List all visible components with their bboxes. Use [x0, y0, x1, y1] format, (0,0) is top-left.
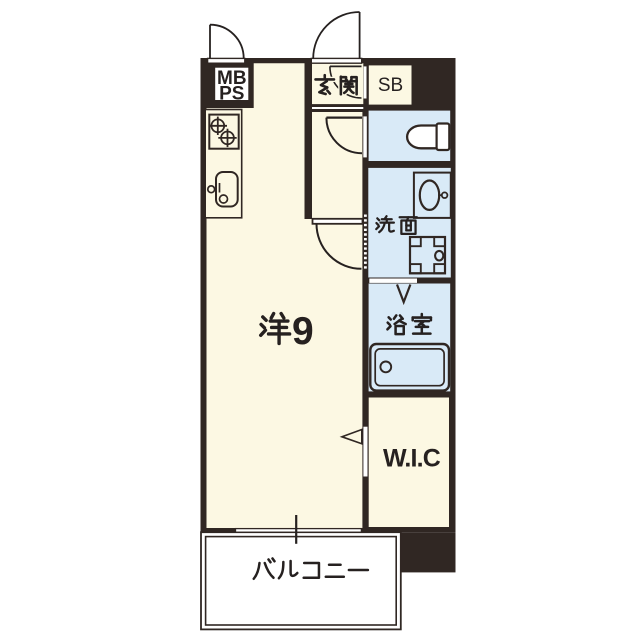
- svg-text:9: 9: [292, 310, 314, 353]
- svg-text:W.I.C: W.I.C: [383, 445, 441, 473]
- svg-text:SB: SB: [378, 75, 403, 96]
- svg-text:PS: PS: [219, 84, 244, 105]
